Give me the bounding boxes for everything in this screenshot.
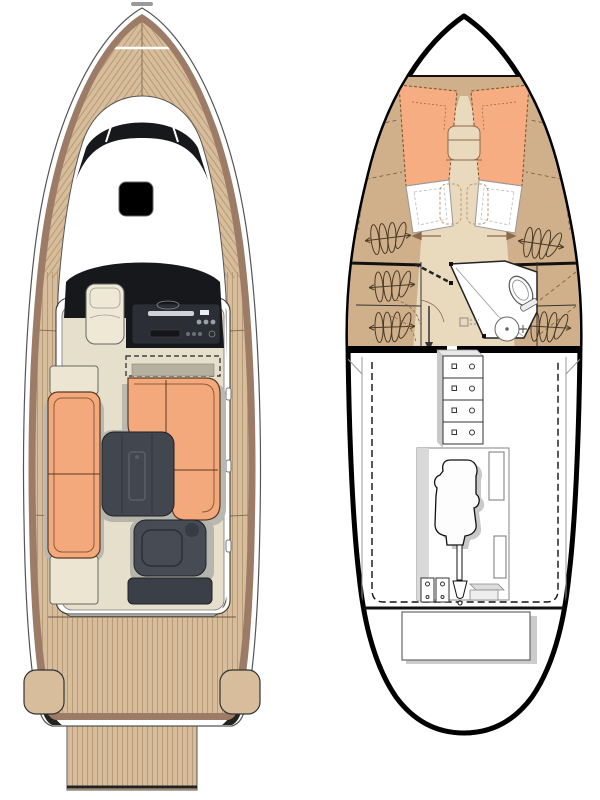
aft-wet-bar <box>128 520 212 604</box>
floorplan-svg <box>0 0 600 800</box>
helm-console <box>132 301 220 344</box>
helm-switch-panel <box>200 310 209 315</box>
main-deck-plan <box>24 2 261 790</box>
backrest-cushion <box>132 364 214 376</box>
propeller-shaft <box>457 545 462 580</box>
bow-steps <box>446 126 482 160</box>
bow-anchor-fitting <box>131 2 153 6</box>
engine-stringer <box>417 448 429 600</box>
sofa-end-table-fwd <box>50 366 98 394</box>
floorplan-canvas <box>0 0 600 800</box>
berth-starboard-foot-cushion <box>475 180 522 233</box>
equipment-box-lower <box>494 536 506 578</box>
stern-locker-left <box>24 670 64 714</box>
sofa-end-table-aft <box>50 556 98 604</box>
cockpit-table <box>102 432 174 516</box>
fuel-tank <box>402 612 537 664</box>
side-sofa <box>48 366 100 604</box>
roof-hatch <box>119 182 153 216</box>
battery-bank <box>437 350 483 448</box>
helm-throttle <box>150 330 180 337</box>
lower-deck-plan <box>344 16 584 733</box>
helm-display <box>148 311 194 316</box>
stern-locker-right <box>220 670 260 714</box>
aft-step <box>128 578 212 604</box>
equipment-box-upper <box>489 452 504 500</box>
berth-port-foot-cushion <box>406 180 453 233</box>
copilot-seat <box>86 284 124 344</box>
